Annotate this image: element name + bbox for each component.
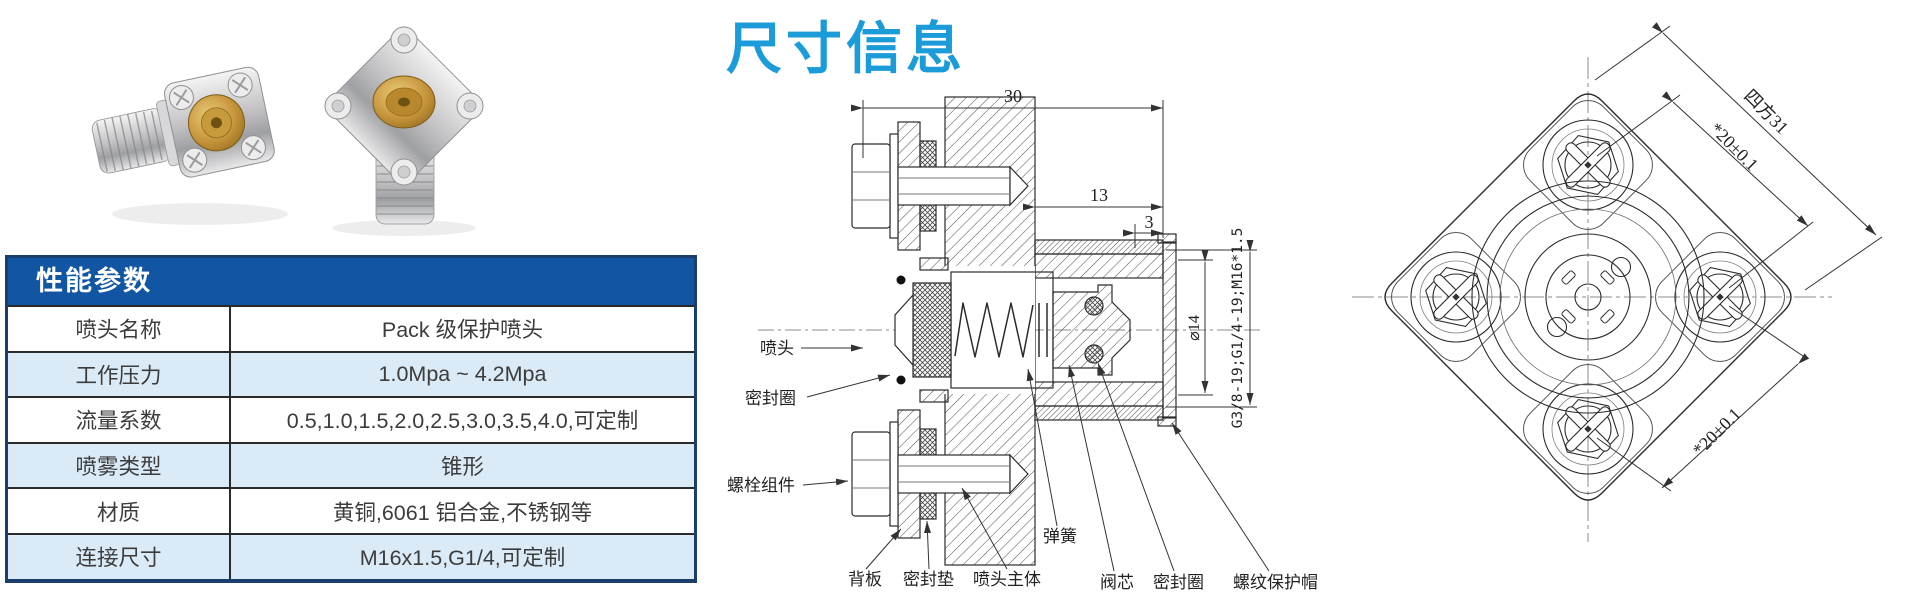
- thread-cap: [1163, 242, 1176, 418]
- table-row: 喷头名称 Pack 级保护喷头: [8, 305, 694, 351]
- table-row: 连接尺寸 M16x1.5,G1/4,可定制: [8, 533, 694, 579]
- label-spring: 弹簧: [1043, 527, 1077, 546]
- thread-strip-bottom: [1035, 406, 1163, 420]
- seal-ring-upper: [1085, 297, 1103, 315]
- dim-line-square: [1663, 33, 1876, 235]
- photo-shadow-left: [112, 203, 288, 225]
- label-nozzle-body: 喷头主体: [973, 570, 1041, 589]
- dim-body-length: 13: [1090, 185, 1108, 205]
- row-label: 工作压力: [8, 353, 231, 397]
- performance-table-header: 性能参数: [8, 258, 694, 305]
- body-lower-wall: [1035, 382, 1163, 406]
- row-value: 1.0Mpa ~ 4.2Mpa: [231, 353, 694, 397]
- row-label: 喷头名称: [8, 307, 231, 351]
- cross-section-drawing: 30 13 3 ⌀14 G3/8-19;G1/4-19;M16*1.5 喷头 密…: [700, 80, 1340, 600]
- row-value: Pack 级保护喷头: [231, 307, 694, 351]
- dim-tip-length: 3: [1145, 212, 1154, 232]
- label-seal-gasket: 密封垫: [903, 570, 954, 589]
- nozzle-insert: [913, 283, 951, 377]
- oring-bottom: [897, 376, 906, 385]
- label-bolt-assembly: 螺栓组件: [727, 476, 795, 495]
- row-label: 连接尺寸: [8, 535, 231, 579]
- row-label: 流量系数: [8, 398, 231, 442]
- label-seal-ring-right: 密封圈: [1153, 573, 1204, 592]
- body-upper-wall: [1035, 254, 1163, 278]
- row-value: 锥形: [231, 444, 694, 488]
- table-row: 喷雾类型 锥形: [8, 442, 694, 488]
- dim-overall-length: 30: [1004, 86, 1022, 106]
- dim-bore-diameter: ⌀14: [1186, 315, 1203, 341]
- table-row: 材质 黄铜,6061 铝合金,不锈钢等: [8, 487, 694, 533]
- seal-ring-lower: [1085, 345, 1103, 363]
- dim-hole-pitch-bottom: *20±0.1: [1689, 404, 1745, 460]
- product-photo: [82, 6, 494, 238]
- label-back-plate: 背板: [848, 570, 882, 589]
- dim-square-size: 四方31: [1740, 86, 1792, 138]
- label-nozzle: 喷头: [760, 339, 794, 358]
- oring-top: [897, 276, 906, 285]
- front-view-drawing: 四方31 *20±0.1 *20±0.1: [1340, 10, 1920, 606]
- row-label: 材质: [8, 489, 231, 533]
- performance-table: 性能参数 喷头名称 Pack 级保护喷头 工作压力 1.0Mpa ~ 4.2Mp…: [5, 255, 697, 583]
- label-thread-cap: 螺纹保护帽: [1233, 573, 1318, 592]
- dim-thread-spec: G3/8-19;G1/4-19;M16*1.5: [1230, 228, 1246, 429]
- page-title: 尺寸信息: [726, 4, 966, 85]
- photo-connector-right: [323, 25, 484, 224]
- label-valve-core: 阀芯: [1100, 573, 1134, 592]
- table-row: 流量系数 0.5,1.0,1.5,2.0,2.5,3.0,3.5,4.0,可定制: [8, 396, 694, 442]
- nozzle-face: [895, 295, 913, 365]
- photo-connector-left: [86, 65, 276, 195]
- row-label: 喷雾类型: [8, 444, 231, 488]
- thread-strip-top: [1035, 240, 1163, 254]
- datasheet-page: 性能参数 喷头名称 Pack 级保护喷头 工作压力 1.0Mpa ~ 4.2Mp…: [0, 0, 1920, 606]
- row-value: 0.5,1.0,1.5,2.0,2.5,3.0,3.5,4.0,可定制: [231, 398, 694, 442]
- row-value: 黄铜,6061 铝合金,不锈钢等: [231, 489, 694, 533]
- dim-hole-pitch-top: *20±0.1: [1706, 119, 1762, 175]
- row-value: M16x1.5,G1/4,可定制: [231, 535, 694, 579]
- table-row: 工作压力 1.0Mpa ~ 4.2Mpa: [8, 351, 694, 397]
- label-seal-ring-left: 密封圈: [745, 389, 796, 408]
